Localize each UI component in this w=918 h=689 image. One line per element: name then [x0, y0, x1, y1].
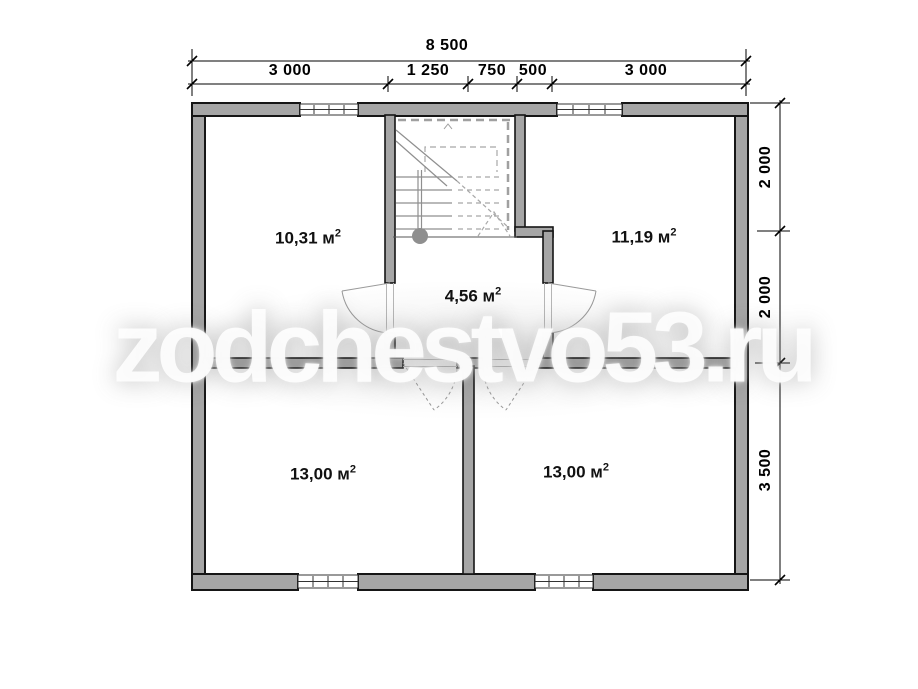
wall-stair-right: [515, 115, 525, 231]
room-area-top-right: 11,19 м2: [611, 227, 676, 248]
room-area-hall: 4,56 м2: [445, 286, 502, 307]
room-area-sup: 2: [335, 228, 341, 240]
room-area-value: 13,00 м: [543, 462, 603, 481]
window-bottom-left: [298, 575, 358, 588]
wall-bottom-b: [358, 574, 535, 590]
room-area-value: 4,56 м: [445, 286, 495, 305]
wall-bottom-c: [593, 574, 748, 590]
wall-bottom-a: [192, 574, 298, 590]
room-area-top-left: 10,31 м2: [275, 228, 341, 249]
dim-top-seg-2: 1 250: [407, 62, 450, 80]
room-area-value: 11,19 м: [611, 227, 670, 246]
wall-top-b: [358, 103, 557, 116]
dim-right-seg-1: 2 000: [757, 146, 775, 189]
dim-right-seg-2: 2 000: [757, 276, 775, 319]
room-area-sup: 2: [495, 286, 501, 298]
window-top-left: [300, 104, 358, 115]
room-area-bottom-right: 13,00 м2: [543, 462, 609, 483]
room-area-sup: 2: [350, 464, 356, 476]
dim-top-seg-5: 3 000: [625, 62, 668, 80]
wall-top-a: [192, 103, 300, 116]
staircase: [393, 120, 517, 244]
wall-hall-right-upper: [543, 231, 553, 283]
watermark: zodchestvo53.ru: [112, 291, 811, 406]
dim-top-total: 8 500: [426, 37, 469, 55]
dim-top-seg-3: 750: [478, 62, 506, 80]
window-top-right: [557, 104, 622, 115]
window-bottom-right: [535, 575, 593, 588]
wall-stair-left: [385, 115, 395, 283]
dim-top-seg-4: 500: [519, 62, 547, 80]
dim-top-seg-1: 3 000: [269, 62, 312, 80]
stair-post: [412, 228, 428, 244]
wall-top-c: [622, 103, 748, 116]
floor-plan: zodchestvo53.ru 8 500 3 000 1 250 750 50…: [0, 0, 918, 689]
room-area-bottom-left: 13,00 м2: [290, 464, 356, 485]
room-area-sup: 2: [670, 227, 676, 239]
room-area-value: 13,00 м: [290, 464, 350, 483]
room-area-sup: 2: [603, 462, 609, 474]
dim-right-seg-3: 3 500: [757, 449, 775, 492]
room-area-value: 10,31 м: [275, 228, 335, 247]
